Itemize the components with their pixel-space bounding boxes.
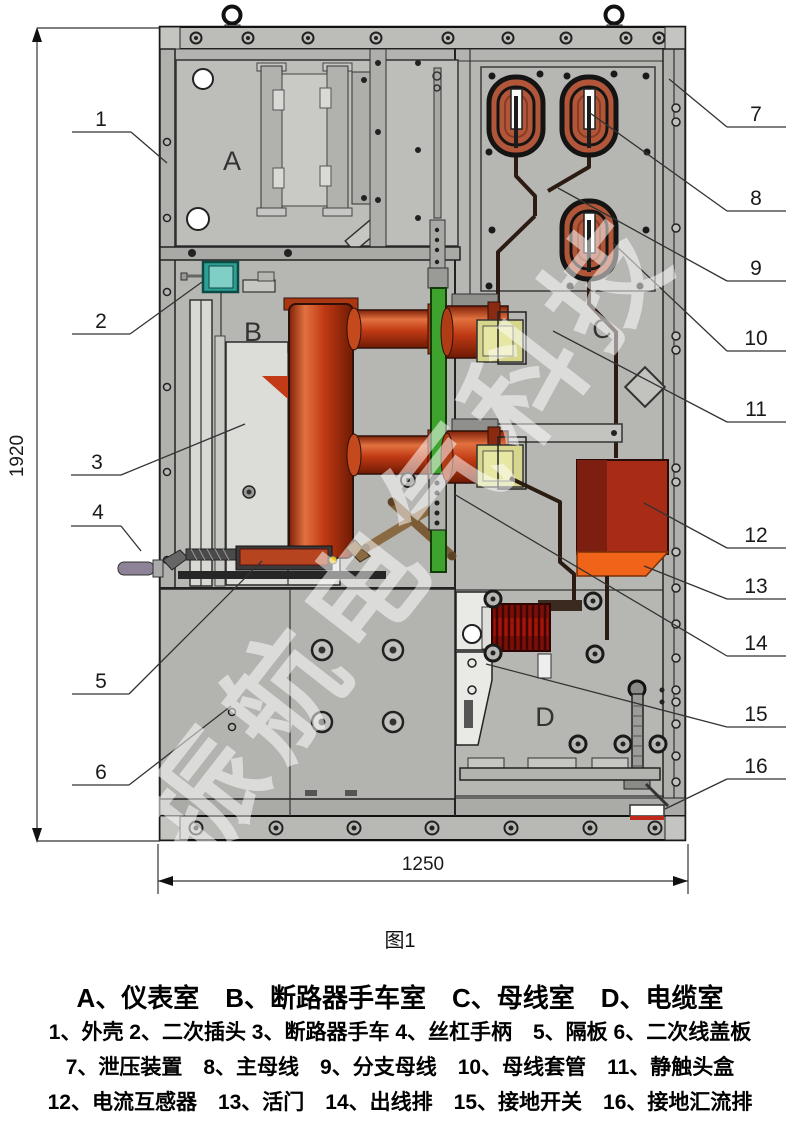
callout-7: 7 [750,103,762,126]
figure-caption: 图1 [0,924,800,953]
callout-11: 11 [745,398,767,421]
callout-4: 4 [92,501,104,524]
compartment-a-instrument: A [160,49,460,260]
legend-compartments: A、仪表室 B、断路器手车室 C、母线室 D、电缆室 [0,978,800,1015]
callout-12: 12 [744,524,767,547]
callout-9: 9 [750,257,762,280]
compartment-d-letter: D [535,702,555,732]
busbar-bushing-1 [489,77,543,155]
callout-3: 3 [91,451,103,474]
callout-1: 1 [95,108,107,131]
lower-pole-arm [347,430,442,480]
upper-pole-arm [347,304,442,354]
legend-row-1: 1、外壳 2、二次插头 3、断路器手车 4、丝杠手柄 5、隔板 6、二次线盖板 [0,1016,800,1046]
callout-13: 13 [744,575,767,598]
callout-10: 10 [744,327,767,350]
panel-hole [187,208,209,230]
lead-screw-handle [118,562,154,575]
height-dimension: 1920 [7,435,28,477]
compartment-c-letter: C [592,314,612,344]
instrument-mounting-frame [257,63,376,216]
callout-5: 5 [95,670,107,693]
legend-row-3: 12、电流互感器 13、活门 14、出线排 15、接地开关 16、接地汇流排 [0,1086,800,1116]
callout-2: 2 [95,310,107,333]
a-b-divider [160,247,460,260]
secondary-wire-cover-panel [160,589,455,816]
compartment-b-letter: B [244,317,262,347]
width-dimension: 1250 [402,854,444,875]
partition-strip [240,549,328,565]
current-transformer [577,460,668,576]
breaker-pole [289,304,353,558]
callout-8: 8 [750,187,762,210]
page: A [0,0,800,1123]
busbar-bushing-3 [562,201,616,279]
panel-hole [193,69,213,89]
compartment-a-letter: A [223,146,241,176]
callout-16: 16 [744,755,767,778]
callout-6: 6 [95,761,107,784]
switchgear-sectional-diagram: A [0,0,800,960]
earthing-busbar-strip [630,805,664,820]
busbar-bushing-2 [562,77,616,155]
callout-14: 14 [744,632,768,655]
callout-15: 15 [744,703,767,726]
legend-row-2: 7、泄压装置 8、主母线 9、分支母线 10、母线套管 11、静触头盒 [0,1051,800,1081]
